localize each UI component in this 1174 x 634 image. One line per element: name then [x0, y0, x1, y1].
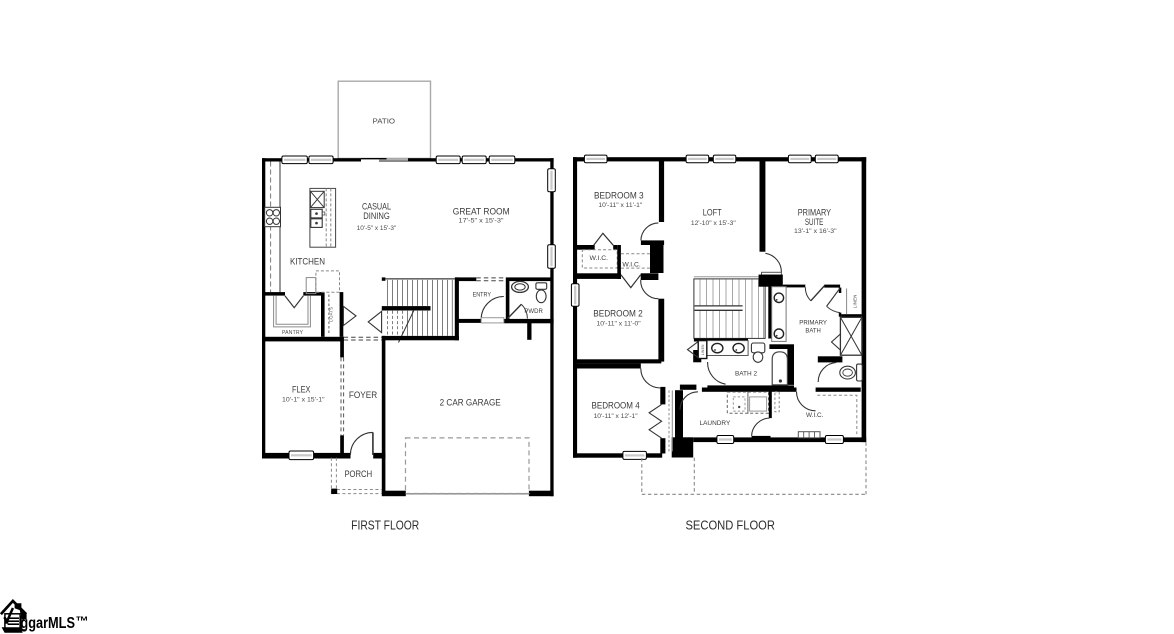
svg-text:LOFT: LOFT — [703, 208, 722, 218]
svg-text:BATH: BATH — [805, 328, 821, 335]
svg-text:PATIO: PATIO — [373, 117, 396, 126]
svg-text:PRIMARY: PRIMARY — [798, 207, 831, 217]
svg-text:2 CAR GARAGE: 2 CAR GARAGE — [440, 397, 501, 407]
svg-text:SECOND FLOOR: SECOND FLOOR — [685, 517, 775, 532]
svg-text:BATH 2: BATH 2 — [735, 371, 757, 378]
svg-text:10'-1" x 15'-1": 10'-1" x 15'-1" — [282, 396, 325, 403]
svg-text:12'-10" x 15'-3": 12'-10" x 15'-3" — [691, 220, 736, 227]
svg-text:ENTRY: ENTRY — [473, 292, 492, 299]
svg-text:10'-11" x 11'-0": 10'-11" x 11'-0" — [597, 321, 641, 328]
svg-text:ggarMLS: ggarMLS — [20, 615, 75, 632]
svg-text:™: ™ — [76, 614, 89, 629]
svg-text:LINEN: LINEN — [853, 294, 858, 308]
svg-text:10'-11" x 11'-1": 10'-11" x 11'-1" — [598, 202, 642, 209]
svg-text:KITCHEN: KITCHEN — [290, 256, 325, 266]
svg-text:W.I.C.: W.I.C. — [622, 261, 641, 268]
svg-text:PORCH: PORCH — [344, 469, 372, 479]
svg-text:10'-11" x 12'-1": 10'-11" x 12'-1" — [594, 413, 638, 420]
svg-text:DINING: DINING — [363, 211, 390, 221]
svg-text:FIRST FLOOR: FIRST FLOOR — [351, 517, 419, 532]
svg-text:FOYER: FOYER — [349, 390, 378, 400]
svg-text:BEDROOM 2: BEDROOM 2 — [593, 308, 643, 318]
svg-text:10'-5" x 15'-3": 10'-5" x 15'-3" — [357, 225, 397, 232]
svg-text:W.I.C.: W.I.C. — [806, 412, 824, 419]
svg-text:PWDR: PWDR — [524, 308, 543, 315]
svg-text:17'-5" x 15'-3": 17'-5" x 15'-3" — [459, 218, 504, 225]
svg-text:13'-1" x 16'-3": 13'-1" x 16'-3" — [794, 228, 837, 235]
svg-text:FLEX: FLEX — [292, 385, 311, 395]
svg-text:CASUAL: CASUAL — [362, 202, 391, 212]
svg-text:LAUNDRY: LAUNDRY — [700, 420, 731, 427]
svg-text:PRIMARY: PRIMARY — [799, 319, 827, 326]
svg-text:COATS: COATS — [328, 307, 333, 322]
svg-text:GREAT ROOM: GREAT ROOM — [453, 206, 510, 216]
svg-text:BEDROOM 4: BEDROOM 4 — [592, 400, 640, 410]
svg-text:LINEN: LINEN — [701, 344, 705, 355]
svg-text:SUITE: SUITE — [805, 217, 824, 227]
svg-text:BEDROOM 3: BEDROOM 3 — [594, 191, 644, 201]
svg-text:W.I.C.: W.I.C. — [590, 255, 609, 262]
svg-text:PANTRY: PANTRY — [282, 330, 303, 336]
